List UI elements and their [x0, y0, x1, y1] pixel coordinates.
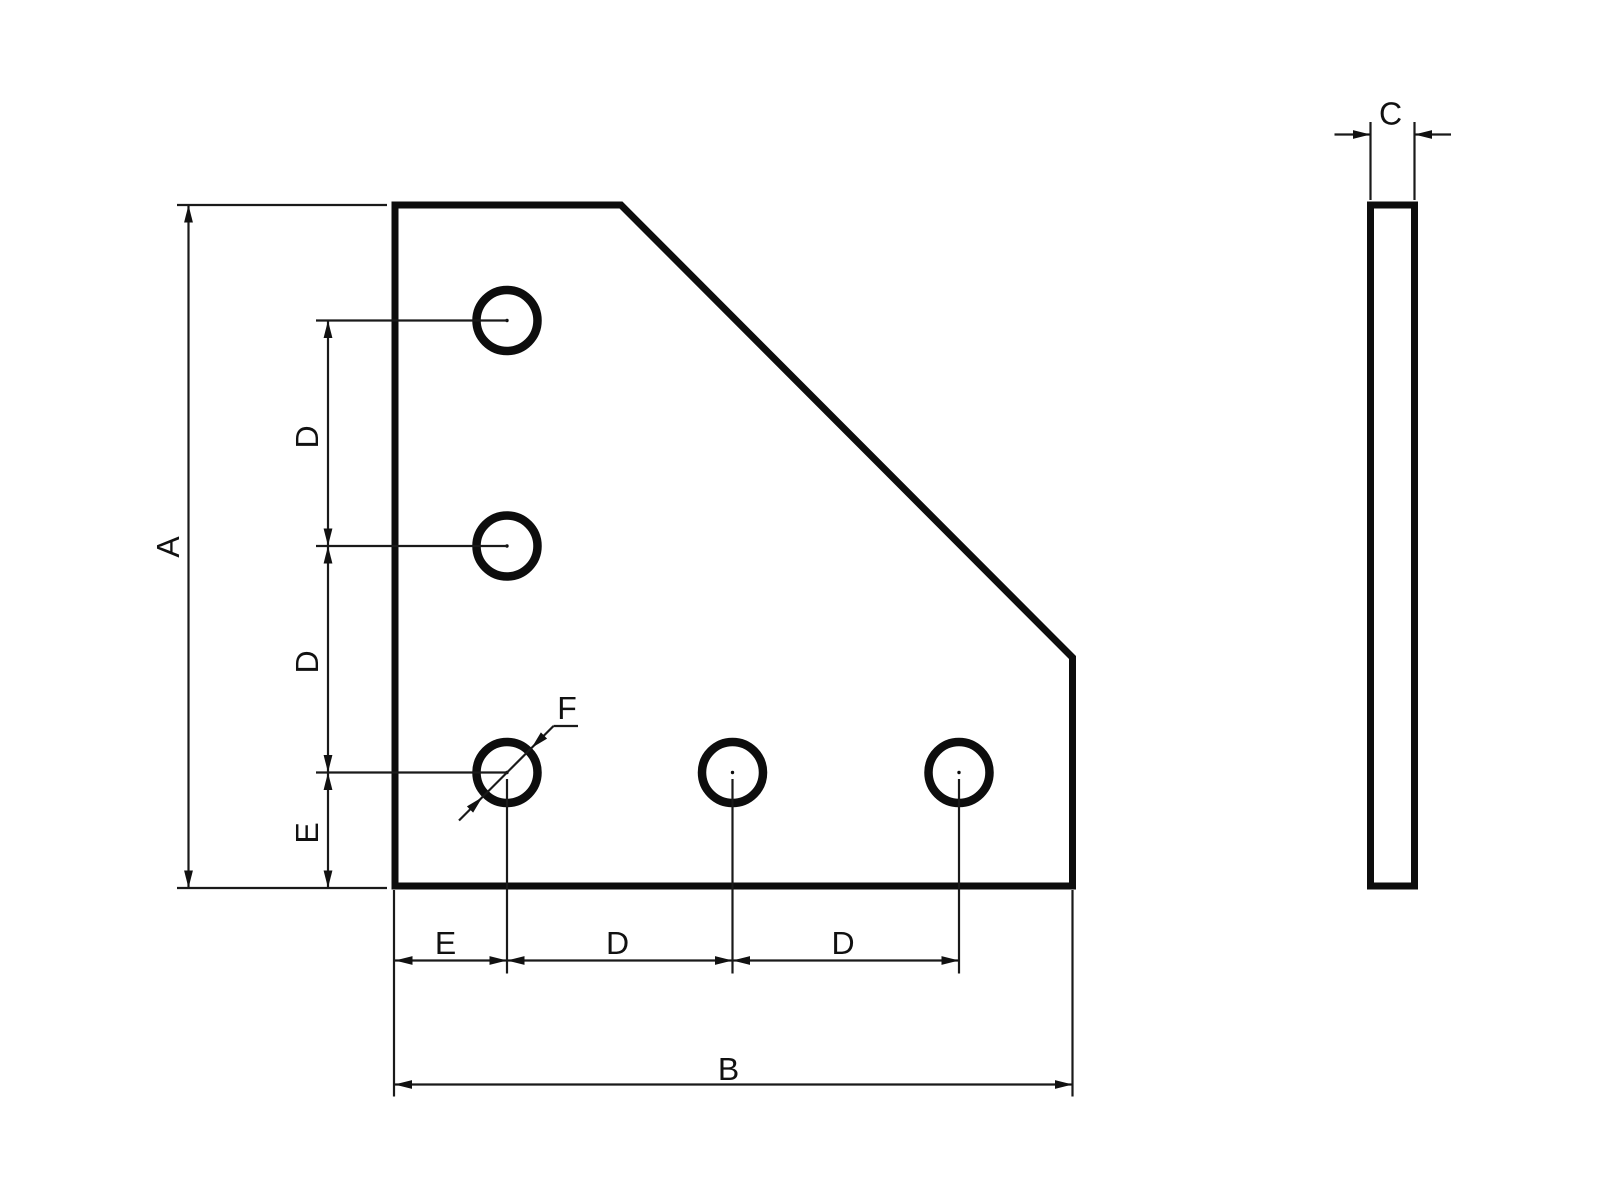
svg-text:A: A — [150, 536, 186, 558]
svg-text:C: C — [1379, 96, 1402, 132]
svg-text:D: D — [289, 650, 325, 673]
svg-text:D: D — [606, 925, 629, 961]
svg-text:E: E — [435, 925, 456, 961]
svg-text:B: B — [718, 1051, 739, 1087]
svg-text:E: E — [289, 822, 325, 843]
svg-text:D: D — [831, 925, 854, 961]
svg-text:D: D — [289, 425, 325, 448]
svg-text:F: F — [557, 690, 577, 726]
